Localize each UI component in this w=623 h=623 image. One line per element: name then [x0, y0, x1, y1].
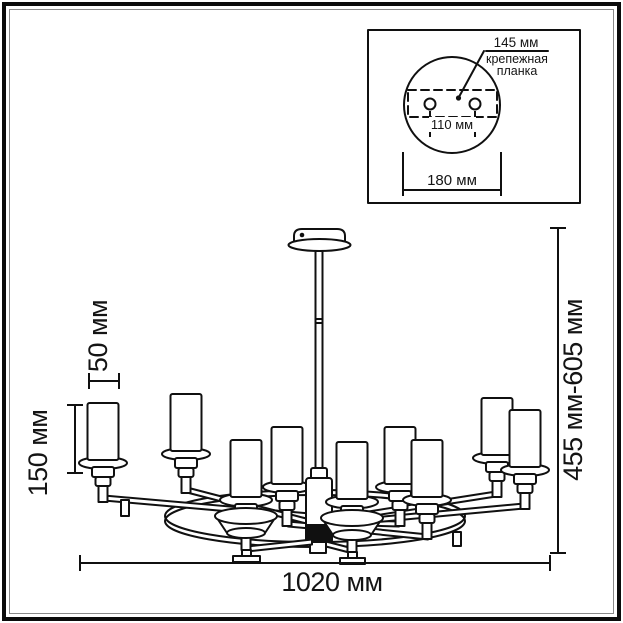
chandelier	[79, 229, 549, 564]
mounting-hole-right	[470, 99, 481, 110]
hanging-rod	[316, 251, 323, 469]
label-180mm: 180 мм	[427, 172, 477, 189]
candle-2	[162, 394, 210, 493]
ceiling-canopy	[289, 229, 351, 251]
candle-1	[79, 403, 127, 502]
drawing-canvas: 145 мм крепежная планка 110 мм 180 мм	[0, 0, 623, 623]
label-1020mm: 1020 мм	[281, 567, 382, 597]
mounting-hole-left	[425, 99, 436, 110]
label-110mm: 110 мм	[431, 117, 473, 132]
mounting-plate-inset: 145 мм крепежная планка 110 мм 180 мм	[368, 30, 580, 203]
label-150mm: 150 мм	[23, 410, 53, 497]
dimension-shade-diameter: 50 мм	[83, 300, 119, 389]
dimension-shade-height: 150 мм	[23, 405, 83, 496]
chandelier-dimension-drawing: 145 мм крепежная планка 110 мм 180 мм	[0, 0, 623, 623]
dimension-total-width: 1020 мм	[80, 555, 550, 597]
label-455-605mm: 455 мм-605 мм	[558, 299, 588, 481]
label-50mm: 50 мм	[83, 300, 113, 372]
label-145mm: 145 мм	[494, 35, 539, 50]
label-plate-line2: планка	[497, 64, 538, 78]
canopy-screw-dot	[300, 233, 305, 238]
dimension-hanging-height: 455 мм-605 мм	[550, 228, 588, 553]
